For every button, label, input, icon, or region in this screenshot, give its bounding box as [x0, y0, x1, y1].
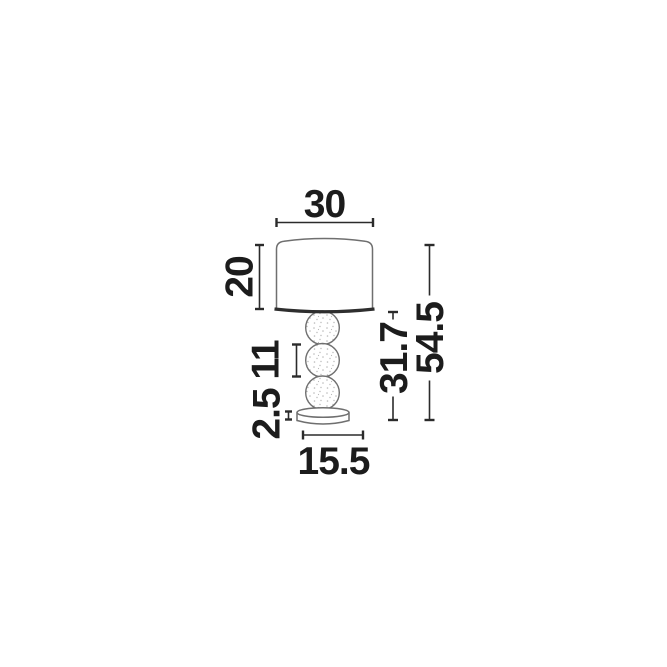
dim-base-thickness-label: 2.5: [246, 388, 289, 440]
dim-shade-width-label: 30: [304, 183, 346, 226]
dim-shade-height-label: 20: [219, 256, 262, 298]
lamp-base-top: [297, 408, 349, 418]
dim-sphere-diameter: 11: [245, 340, 302, 380]
sphere-top: [306, 311, 340, 345]
dim-shade-width: 30: [277, 183, 374, 227]
lamp-base: [297, 408, 349, 424]
dim-base-thickness: 2.5: [246, 388, 293, 440]
sphere-middle: [306, 344, 340, 378]
lamp-dimension-diagram: 30 20 11 2.5 15.5 31.7: [0, 0, 667, 667]
dim-base-width-label: 15.5: [298, 440, 370, 483]
sphere-bottom: [306, 376, 340, 410]
dim-total-height-label: 54.5: [409, 302, 452, 374]
dim-sphere-diameter-label: 11: [245, 340, 288, 380]
lampshade: [277, 239, 373, 311]
lamp-stem-spheres: [306, 311, 340, 410]
dim-base-width: 15.5: [298, 431, 370, 484]
dim-shade-height: 20: [219, 245, 265, 309]
